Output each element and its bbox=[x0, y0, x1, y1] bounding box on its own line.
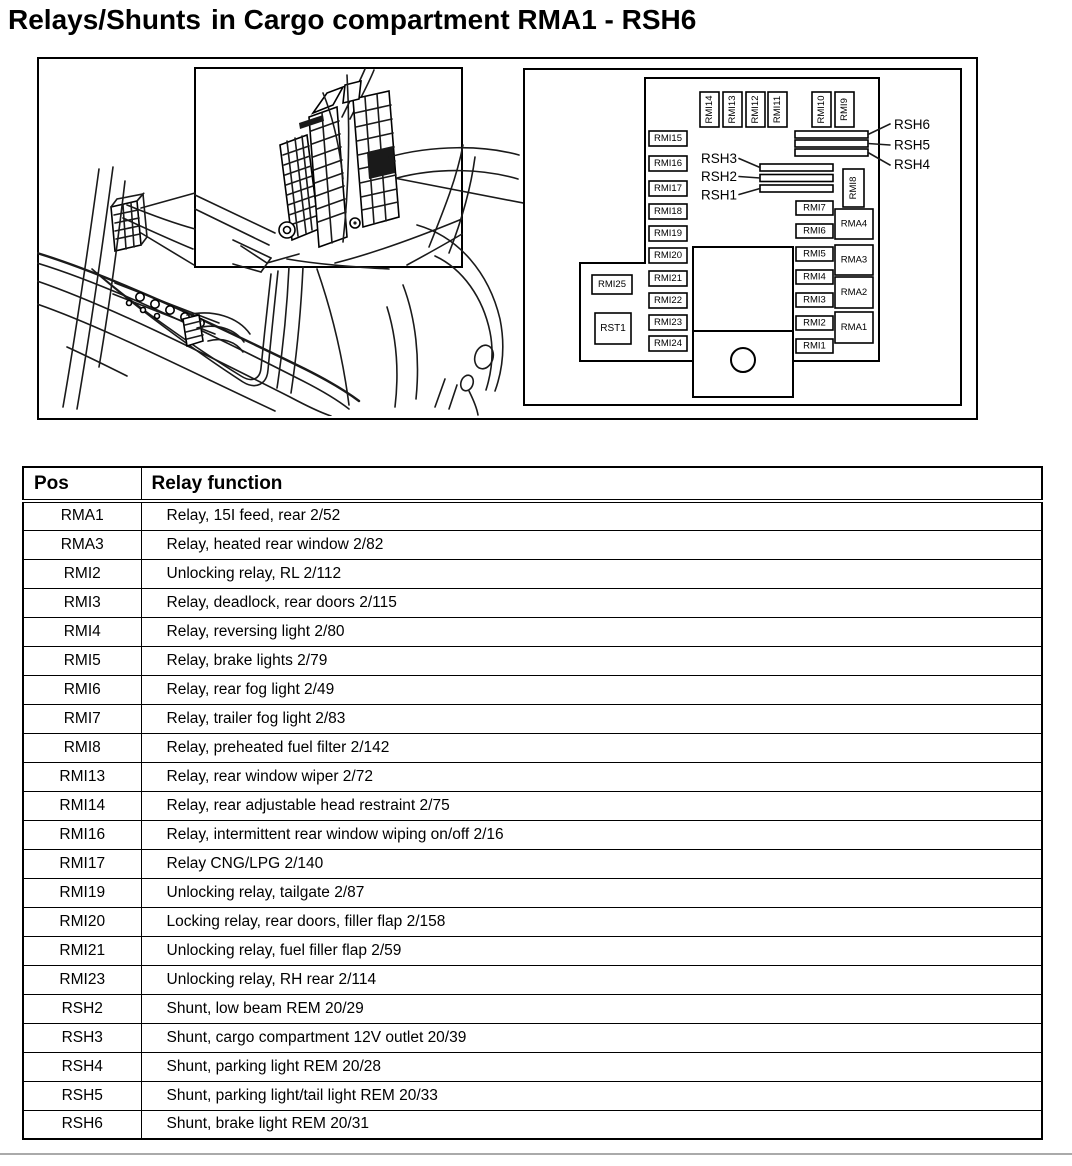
shunt-label: RSH4 bbox=[894, 157, 931, 172]
function-cell: Relay, 15I feed, rear 2/52 bbox=[141, 501, 1042, 530]
function-cell: Relay, preheated fuel filter 2/142 bbox=[141, 733, 1042, 762]
relay-label: RMI25 bbox=[598, 279, 626, 290]
table-row: RSH2Shunt, low beam REM 20/29 bbox=[23, 994, 1042, 1023]
schematic-top-row: RMI14 RMI13 RMI12 RMI11 RMI10 RMI9 bbox=[700, 92, 854, 127]
table-row: RMI6Relay, rear fog light 2/49 bbox=[23, 675, 1042, 704]
pos-cell: RSH5 bbox=[23, 1081, 141, 1110]
callout-leader-top bbox=[141, 193, 195, 208]
table-row: RSH4Shunt, parking light REM 20/28 bbox=[23, 1052, 1042, 1081]
pos-cell: RMI23 bbox=[23, 965, 141, 994]
relay-box-schematic: RMI14 RMI13 RMI12 RMI11 RMI10 RMI9 RSH6 … bbox=[525, 70, 956, 400]
page: Relays/Shuntsin Cargo compartment RMA1 -… bbox=[0, 0, 1072, 1166]
relay-label: RMI20 bbox=[654, 250, 682, 261]
cargo-compartment-illustration bbox=[37, 57, 523, 416]
table-row: RSH3Shunt, cargo compartment 12V outlet … bbox=[23, 1023, 1042, 1052]
function-cell: Relay, reversing light 2/80 bbox=[141, 617, 1042, 646]
relay-label: RMI4 bbox=[803, 272, 826, 283]
pos-cell: RMI3 bbox=[23, 588, 141, 617]
table-row: RMI5Relay, brake lights 2/79 bbox=[23, 646, 1042, 675]
pos-cell: RMI20 bbox=[23, 907, 141, 936]
relay-label: RST1 bbox=[600, 323, 626, 334]
pos-cell: RMI5 bbox=[23, 646, 141, 675]
relay-label: RMI12 bbox=[750, 96, 761, 124]
relay-label: RMI16 bbox=[654, 158, 682, 169]
relay-label: RMI13 bbox=[727, 96, 738, 124]
function-cell: Unlocking relay, fuel filler flap 2/59 bbox=[141, 936, 1042, 965]
shunt-label: RSH6 bbox=[894, 117, 930, 132]
pos-cell: RMI2 bbox=[23, 559, 141, 588]
table-row: RMI3Relay, deadlock, rear doors 2/115 bbox=[23, 588, 1042, 617]
pos-cell: RMA3 bbox=[23, 530, 141, 559]
table-row: RMI17Relay CNG/LPG 2/140 bbox=[23, 849, 1042, 878]
table-row: RSH5Shunt, parking light/tail light REM … bbox=[23, 1081, 1042, 1110]
table-row: RMI7Relay, trailer fog light 2/83 bbox=[23, 704, 1042, 733]
relay-label: RMA3 bbox=[841, 255, 867, 266]
header-relay-function: Relay function bbox=[141, 467, 1042, 501]
relay-label: RMI9 bbox=[839, 98, 850, 121]
table-row: RMI23Unlocking relay, RH rear 2/114 bbox=[23, 965, 1042, 994]
pos-cell: RMI16 bbox=[23, 820, 141, 849]
schematic-left-column: RMI15 RMI16 RMI17 RMI18 RMI19 RMI20 RMI2… bbox=[649, 131, 687, 351]
relay-label: RMI5 bbox=[803, 249, 826, 260]
relay-label: RMA4 bbox=[841, 219, 867, 230]
shunt-label: RSH5 bbox=[894, 138, 930, 153]
page-title-part1: Relays/Shunts bbox=[8, 4, 201, 35]
relay-label: RMI19 bbox=[654, 228, 682, 239]
relay-label: RMI17 bbox=[654, 183, 682, 194]
relay-label: RMI6 bbox=[803, 226, 826, 237]
relay-label: RMI2 bbox=[803, 318, 826, 329]
function-cell: Relay, trailer fog light 2/83 bbox=[141, 704, 1042, 733]
pos-cell: RMI4 bbox=[23, 617, 141, 646]
pos-cell: RMI8 bbox=[23, 733, 141, 762]
shunt-label: RSH3 bbox=[701, 151, 737, 166]
page-title-part2: in Cargo compartment RMA1 - RSH6 bbox=[211, 4, 696, 35]
page-title: Relays/Shuntsin Cargo compartment RMA1 -… bbox=[8, 4, 696, 36]
relay-label: RMI3 bbox=[803, 295, 826, 306]
relay-function-table: Pos Relay function RMA1Relay, 15I feed, … bbox=[22, 466, 1043, 1140]
relay-table-body: RMA1Relay, 15I feed, rear 2/52RMA3Relay,… bbox=[23, 501, 1042, 1139]
function-cell: Relay, rear window wiper 2/72 bbox=[141, 762, 1042, 791]
pos-cell: RSH3 bbox=[23, 1023, 141, 1052]
header-pos: Pos bbox=[23, 467, 141, 501]
relay-label: RMI24 bbox=[654, 338, 682, 349]
function-cell: Relay, heated rear window 2/82 bbox=[141, 530, 1042, 559]
function-cell: Relay CNG/LPG 2/140 bbox=[141, 849, 1042, 878]
table-row: RMI13Relay, rear window wiper 2/72 bbox=[23, 762, 1042, 791]
table-row: RMI14Relay, rear adjustable head restrai… bbox=[23, 791, 1042, 820]
pos-cell: RMI6 bbox=[23, 675, 141, 704]
schematic-right-column: RMI7 RMI6 RMI5 RMI4 RMI3 RMI2 RMI1 bbox=[796, 201, 833, 353]
pos-cell: RMI17 bbox=[23, 849, 141, 878]
table-row: RMI20Locking relay, rear doors, filler f… bbox=[23, 907, 1042, 936]
page-bottom-rule bbox=[0, 1153, 1072, 1155]
function-cell: Unlocking relay, RL 2/112 bbox=[141, 559, 1042, 588]
relay-label: RMI21 bbox=[654, 273, 682, 284]
function-cell: Shunt, cargo compartment 12V outlet 20/3… bbox=[141, 1023, 1042, 1052]
function-cell: Shunt, parking light/tail light REM 20/3… bbox=[141, 1081, 1042, 1110]
relay-label: RMI14 bbox=[704, 96, 715, 124]
relay-label: RMA2 bbox=[841, 287, 867, 298]
shunt-label: RSH2 bbox=[701, 169, 737, 184]
table-row: RMI2Unlocking relay, RL 2/112 bbox=[23, 559, 1042, 588]
table-row: RMI16Relay, intermittent rear window wip… bbox=[23, 820, 1042, 849]
function-cell: Shunt, brake light REM 20/31 bbox=[141, 1110, 1042, 1139]
relay-label: RMI7 bbox=[803, 203, 826, 214]
pos-cell: RSH6 bbox=[23, 1110, 141, 1139]
pos-cell: RMI19 bbox=[23, 878, 141, 907]
table-row: RMA3Relay, heated rear window 2/82 bbox=[23, 530, 1042, 559]
table-row: RMI8Relay, preheated fuel filter 2/142 bbox=[23, 733, 1042, 762]
function-cell: Shunt, parking light REM 20/28 bbox=[141, 1052, 1042, 1081]
pos-cell: RMI7 bbox=[23, 704, 141, 733]
table-row: RMA1Relay, 15I feed, rear 2/52 bbox=[23, 501, 1042, 530]
pos-cell: RMI14 bbox=[23, 791, 141, 820]
table-row: RMI4Relay, reversing light 2/80 bbox=[23, 617, 1042, 646]
relay-label: RMI11 bbox=[772, 96, 783, 123]
relay-label: RMA1 bbox=[841, 322, 867, 333]
function-cell: Relay, rear fog light 2/49 bbox=[141, 675, 1042, 704]
table-row: RMI21Unlocking relay, fuel filler flap 2… bbox=[23, 936, 1042, 965]
table-header-row: Pos Relay function bbox=[23, 467, 1042, 501]
pos-cell: RMA1 bbox=[23, 501, 141, 530]
table-row: RMI19Unlocking relay, tailgate 2/87 bbox=[23, 878, 1042, 907]
relay-label: RMI22 bbox=[654, 295, 682, 306]
table-row: RSH6Shunt, brake light REM 20/31 bbox=[23, 1110, 1042, 1139]
function-cell: Relay, deadlock, rear doors 2/115 bbox=[141, 588, 1042, 617]
relay-label: RMI23 bbox=[654, 317, 682, 328]
pos-cell: RSH2 bbox=[23, 994, 141, 1023]
module-circle bbox=[731, 348, 755, 372]
pos-cell: RSH4 bbox=[23, 1052, 141, 1081]
pos-cell: RMI21 bbox=[23, 936, 141, 965]
function-cell: Shunt, low beam REM 20/29 bbox=[141, 994, 1042, 1023]
function-cell: Locking relay, rear doors, filler flap 2… bbox=[141, 907, 1042, 936]
relay-label: RMI1 bbox=[803, 341, 826, 352]
function-cell: Relay, intermittent rear window wiping o… bbox=[141, 820, 1042, 849]
relay-label: RMI18 bbox=[654, 206, 682, 217]
center-module-upper bbox=[693, 247, 793, 331]
shunt-label: RSH1 bbox=[701, 188, 737, 203]
relay-box-location bbox=[111, 194, 147, 251]
function-cell: Relay, rear adjustable head restraint 2/… bbox=[141, 791, 1042, 820]
function-cell: Unlocking relay, RH rear 2/114 bbox=[141, 965, 1042, 994]
relay-label: RMI10 bbox=[816, 96, 827, 124]
function-cell: Relay, brake lights 2/79 bbox=[141, 646, 1042, 675]
relay-label: RMI8 bbox=[848, 177, 859, 200]
pos-cell: RMI13 bbox=[23, 762, 141, 791]
relay-label: RMI15 bbox=[654, 133, 682, 144]
function-cell: Unlocking relay, tailgate 2/87 bbox=[141, 878, 1042, 907]
